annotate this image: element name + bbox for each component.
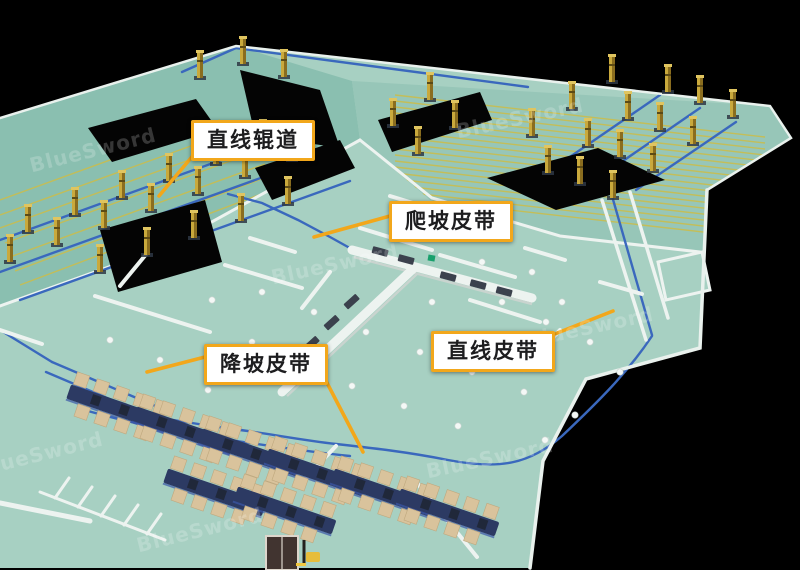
forklift-forks [296, 563, 306, 566]
callout-incline-belt: 爬坡皮带 [389, 201, 513, 242]
forklift-body [306, 552, 320, 562]
green-machine [428, 255, 436, 262]
callout-straight-roller: 直线辊道 [191, 120, 315, 161]
scene-illustration [0, 0, 800, 570]
callout-decline-belt: 降坡皮带 [204, 344, 328, 385]
warehouse-3d-scene: BlueSword BlueSword BlueSword BlueSword … [0, 0, 800, 570]
callout-straight-belt: 直线皮带 [431, 331, 555, 372]
